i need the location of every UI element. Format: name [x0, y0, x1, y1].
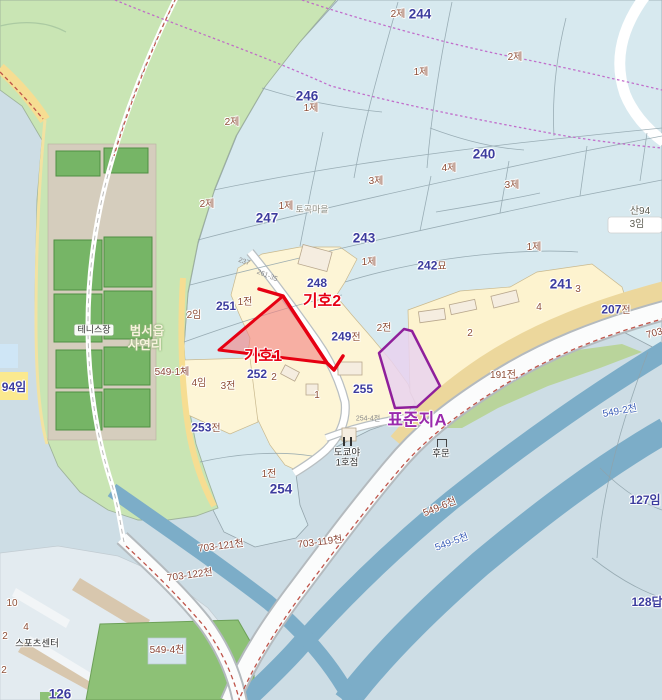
cadastral-map[interactable]: 2제2442제2461제2제1제2404제3제3제2제1제토곡마을2472431…: [0, 0, 662, 700]
map-canvas[interactable]: [0, 0, 662, 700]
